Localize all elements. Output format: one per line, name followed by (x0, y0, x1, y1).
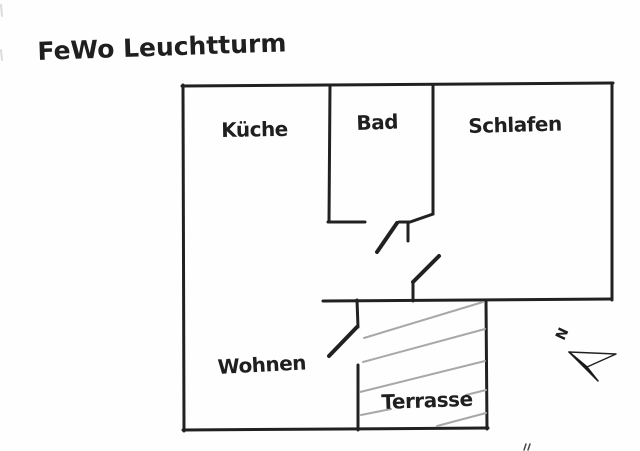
stray-pen-marks (524, 444, 530, 450)
hatch-line (437, 413, 486, 426)
wall-left (183, 85, 184, 431)
room-label-terrasse: Terrasse (381, 387, 473, 414)
wall-hall-south (323, 299, 612, 301)
scan-artifacts (1, 5, 2, 60)
wall-terrace-jamb (357, 300, 358, 327)
scan-smudge (1, 50, 2, 60)
floor-plan-drawing (0, 0, 640, 451)
room-label-wohnen: Wohnen (217, 350, 307, 379)
room-label-schlafen: Schlafen (468, 112, 562, 138)
wall-top (182, 83, 613, 86)
floor-plan-page: FeWo Leuchtturm Küche Bad Schlafen Wohne… (0, 0, 640, 451)
door-terrace-leaf (329, 327, 357, 356)
door-bad-leaf (377, 223, 397, 252)
room-label-bad: Bad (356, 110, 398, 135)
room-label-kueche: Küche (221, 117, 288, 142)
stray-mark (528, 444, 530, 450)
stray-mark (524, 444, 526, 450)
scan-smudge (1, 5, 2, 16)
wall-kueche-bad (329, 85, 330, 222)
doors (329, 223, 439, 356)
wall-terrace-right (486, 300, 487, 429)
hatch-line (364, 302, 483, 338)
door-hall-leaf (413, 256, 439, 282)
wall-bad-schlafen (399, 85, 433, 222)
hatch-line (363, 329, 485, 362)
north-arrow-icon (569, 352, 616, 381)
wall-bottom (183, 428, 488, 430)
